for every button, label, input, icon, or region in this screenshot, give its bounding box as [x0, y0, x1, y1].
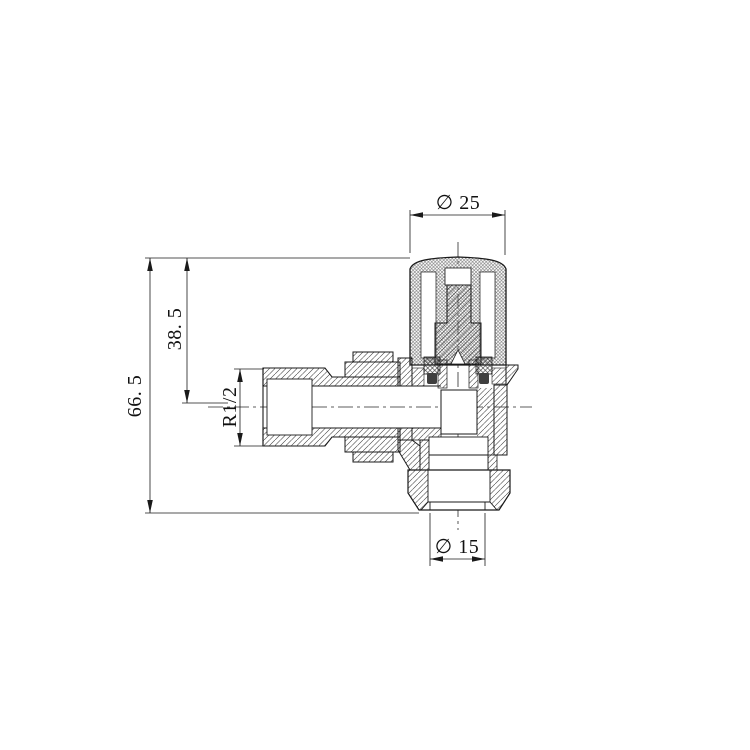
dim-overall-height-label: 66. 5	[124, 375, 146, 418]
compression-nut	[408, 470, 510, 510]
technical-drawing-canvas: ∅ 25 66. 5 38. 5 R1/2 ∅ 15	[0, 0, 750, 750]
o-ring-left	[427, 373, 437, 384]
dim-bottom-diameter-label: ∅ 15	[435, 536, 479, 558]
dim-top-diameter-label: ∅ 25	[436, 192, 480, 214]
inlet-socket	[267, 379, 312, 435]
dim-inlet-thread-label: R1/2	[219, 387, 241, 428]
o-ring-right	[479, 373, 489, 384]
valve-cap	[410, 257, 506, 365]
drawing-page: ∅ 25 66. 5 38. 5 R1/2 ∅ 15	[0, 0, 750, 750]
dim-upper-height-label: 38. 5	[164, 308, 186, 351]
valve-spindle	[441, 390, 477, 434]
